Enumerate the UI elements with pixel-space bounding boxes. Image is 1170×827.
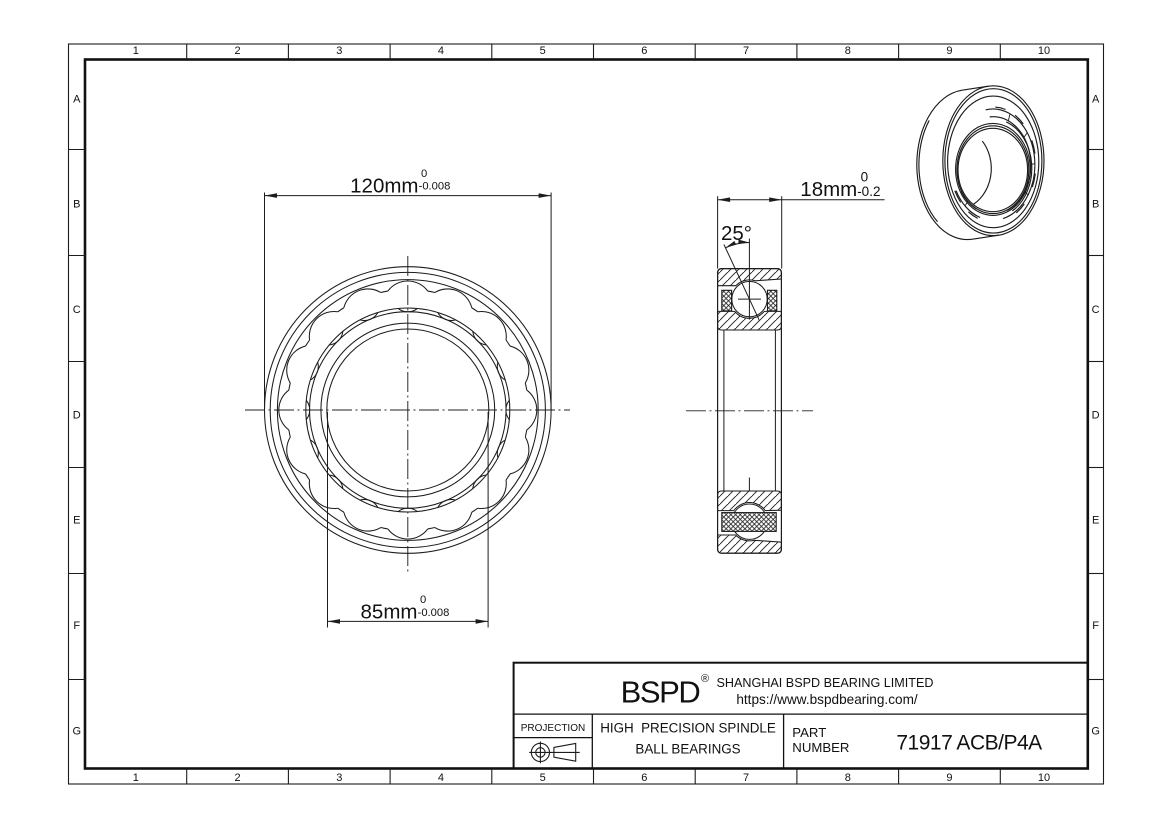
- svg-text:A: A: [73, 93, 81, 105]
- svg-text:0: 0: [421, 168, 427, 180]
- svg-text:0: 0: [420, 594, 426, 606]
- svg-text:6: 6: [641, 772, 647, 784]
- svg-text:F: F: [1092, 620, 1099, 632]
- svg-text:4: 4: [438, 772, 444, 784]
- svg-text:D: D: [73, 409, 81, 421]
- svg-text:PROJECTION: PROJECTION: [521, 723, 585, 734]
- svg-text:1: 1: [133, 45, 139, 57]
- svg-text:7: 7: [743, 772, 749, 784]
- svg-text:9: 9: [946, 772, 952, 784]
- svg-text:71917 ACB/P4A: 71917 ACB/P4A: [896, 731, 1042, 754]
- svg-text:3: 3: [336, 45, 342, 57]
- svg-text:-0.2: -0.2: [857, 184, 880, 199]
- svg-text:HIGH PRECISION SPINDLE: HIGH PRECISION SPINDLE: [600, 721, 776, 736]
- svg-text:®: ®: [701, 673, 709, 685]
- svg-text:10: 10: [1038, 772, 1050, 784]
- svg-text:3: 3: [336, 772, 342, 784]
- svg-text:8: 8: [845, 45, 851, 57]
- svg-text:G: G: [1091, 725, 1100, 737]
- svg-text:-0.008: -0.008: [419, 181, 451, 193]
- svg-text:4: 4: [438, 45, 444, 57]
- svg-text:E: E: [1092, 515, 1099, 527]
- svg-text:BSPD: BSPD: [621, 674, 700, 709]
- svg-text:6: 6: [641, 45, 647, 57]
- svg-text:PART: PART: [792, 725, 826, 740]
- svg-text:9: 9: [946, 45, 952, 57]
- svg-text:A: A: [1092, 93, 1100, 105]
- svg-text:1: 1: [133, 772, 139, 784]
- svg-text:G: G: [72, 725, 81, 737]
- svg-text:E: E: [73, 515, 80, 527]
- svg-text:SHANGHAI BSPD BEARING LIMITED: SHANGHAI BSPD BEARING LIMITED: [717, 676, 934, 690]
- svg-text:C: C: [73, 304, 81, 316]
- svg-text:F: F: [73, 620, 80, 632]
- svg-text:B: B: [1092, 199, 1099, 211]
- svg-text:10: 10: [1038, 45, 1050, 57]
- svg-text:8: 8: [845, 772, 851, 784]
- svg-text:NUMBER: NUMBER: [792, 740, 849, 755]
- svg-text:5: 5: [540, 45, 546, 57]
- svg-text:2: 2: [234, 45, 240, 57]
- svg-text:25°: 25°: [721, 222, 752, 245]
- svg-text:BALL BEARINGS: BALL BEARINGS: [635, 742, 740, 757]
- svg-text:B: B: [73, 199, 80, 211]
- svg-text:D: D: [1092, 409, 1100, 421]
- svg-text:85mm: 85mm: [361, 601, 418, 624]
- svg-text:0: 0: [861, 170, 869, 185]
- svg-text:C: C: [1092, 304, 1100, 316]
- svg-text:7: 7: [743, 45, 749, 57]
- svg-text:https://www.bspdbearing.com/: https://www.bspdbearing.com/: [736, 692, 918, 707]
- svg-text:-0.008: -0.008: [418, 607, 450, 619]
- svg-text:18mm: 18mm: [800, 178, 857, 201]
- svg-text:2: 2: [234, 772, 240, 784]
- svg-text:120mm: 120mm: [350, 174, 418, 197]
- svg-text:5: 5: [540, 772, 546, 784]
